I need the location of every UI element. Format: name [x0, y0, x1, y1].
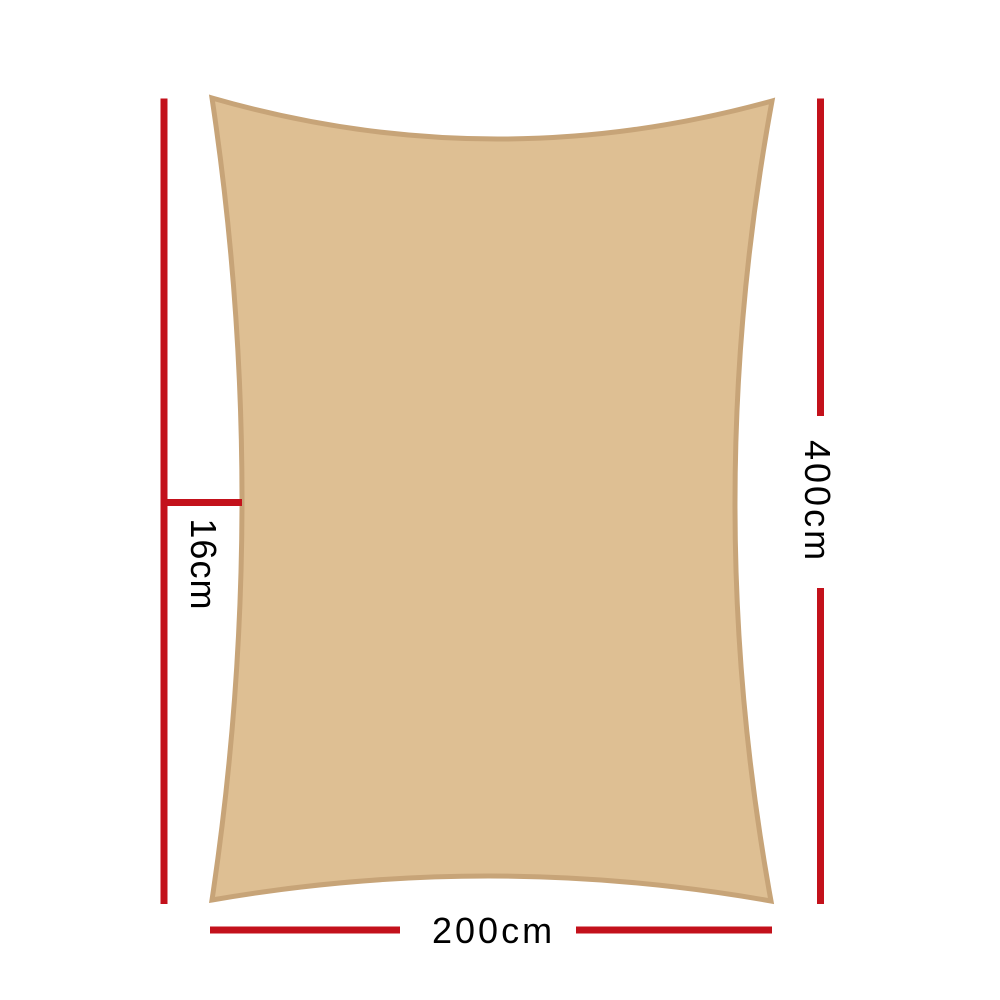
svg-text:16cm: 16cm	[183, 518, 224, 610]
svg-text:200cm: 200cm	[432, 910, 555, 951]
svg-text:400cm: 400cm	[797, 440, 838, 563]
